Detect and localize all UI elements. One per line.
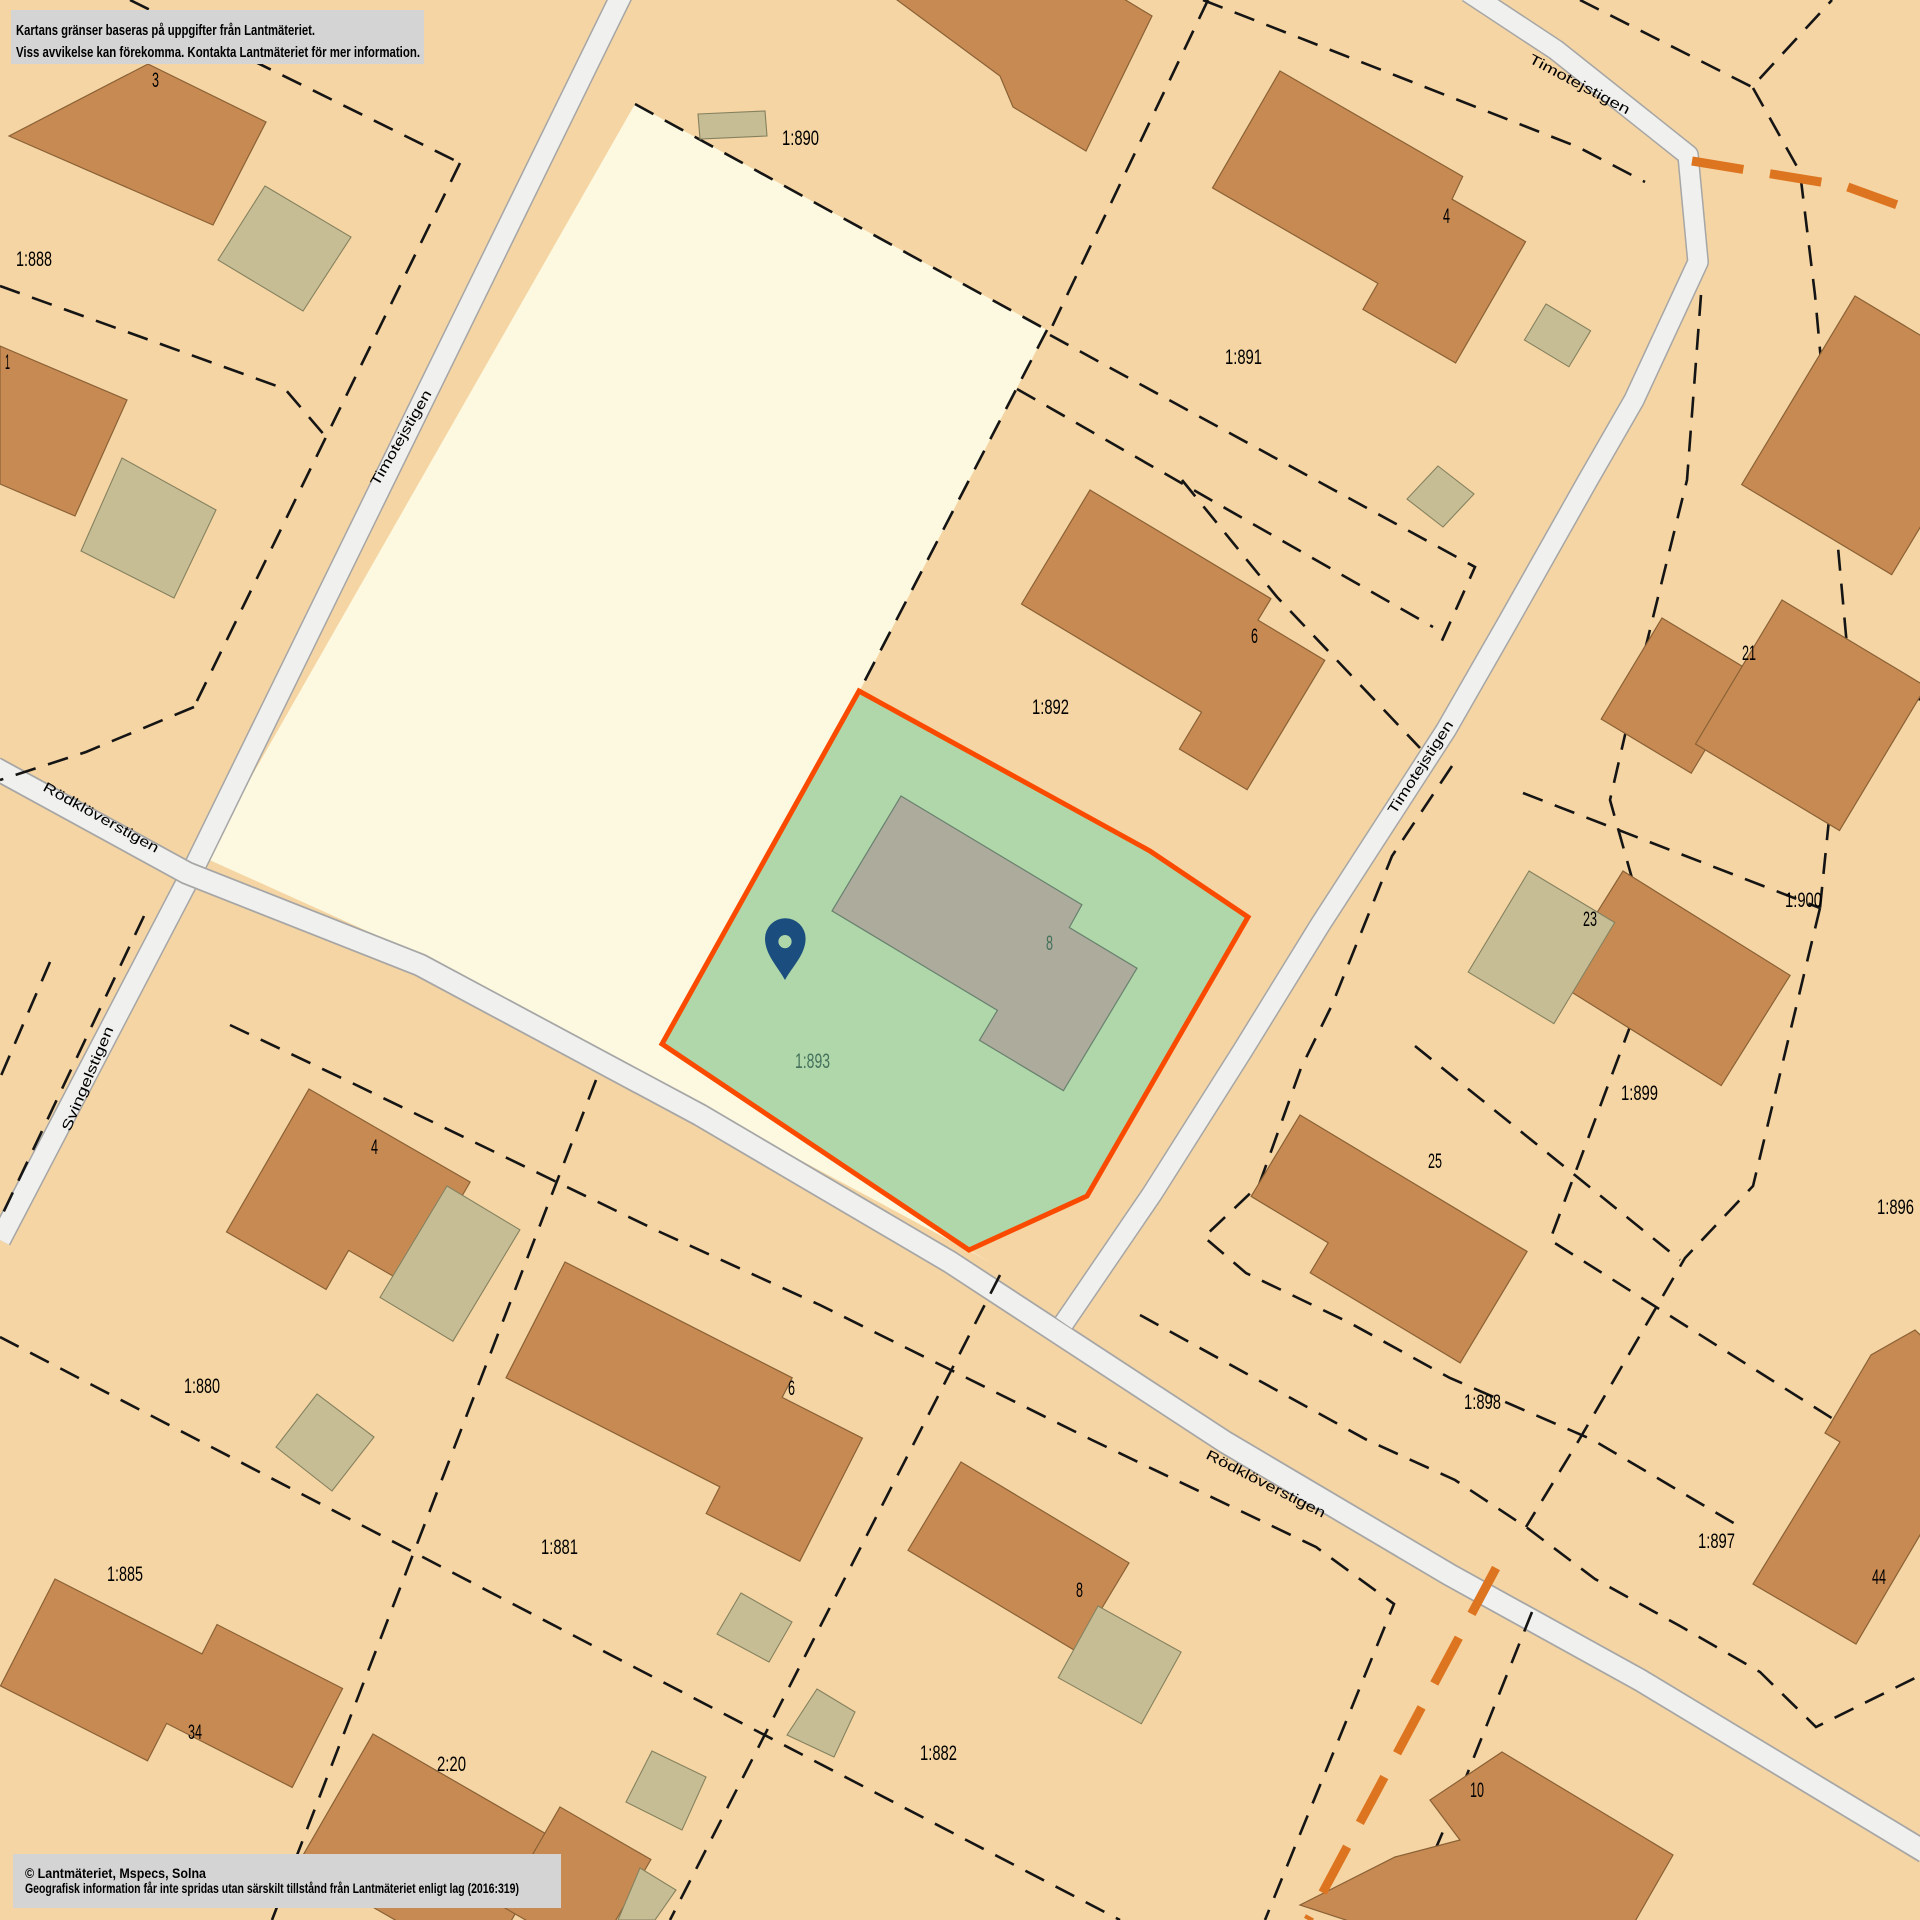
svg-text:34: 34 <box>188 1721 202 1744</box>
svg-text:8: 8 <box>1076 1579 1083 1602</box>
svg-text:1:882: 1:882 <box>920 1742 957 1765</box>
svg-text:4: 4 <box>1443 205 1450 228</box>
svg-text:25: 25 <box>1428 1150 1442 1173</box>
svg-text:1:893: 1:893 <box>795 1050 830 1073</box>
svg-text:Viss avvikelse kan förekomma.: Viss avvikelse kan förekomma. Kontakta L… <box>16 44 420 61</box>
svg-text:6: 6 <box>1251 625 1258 648</box>
svg-text:6: 6 <box>788 1377 795 1400</box>
svg-text:1:891: 1:891 <box>1225 346 1262 369</box>
svg-text:1:892: 1:892 <box>1032 696 1069 719</box>
svg-text:1:899: 1:899 <box>1621 1082 1658 1105</box>
svg-text:1:880: 1:880 <box>184 1375 220 1398</box>
svg-text:1:888: 1:888 <box>16 248 52 271</box>
svg-text:© Lantmäteriet, Mspecs, Solna: © Lantmäteriet, Mspecs, Solna <box>25 1866 206 1881</box>
svg-text:3: 3 <box>152 69 159 92</box>
svg-text:4: 4 <box>371 1136 378 1159</box>
svg-text:Kartans gränser baseras på upp: Kartans gränser baseras på uppgifter frå… <box>16 22 315 39</box>
svg-text:8: 8 <box>1046 932 1053 955</box>
svg-text:1:900: 1:900 <box>1785 889 1822 912</box>
svg-text:1:896: 1:896 <box>1877 1196 1914 1219</box>
svg-text:44: 44 <box>1872 1566 1886 1589</box>
svg-text:1:897: 1:897 <box>1698 1530 1735 1553</box>
svg-text:2:20: 2:20 <box>437 1753 466 1776</box>
svg-text:1:885: 1:885 <box>107 1563 143 1586</box>
svg-text:10: 10 <box>1470 1779 1484 1802</box>
svg-text:1: 1 <box>5 351 10 374</box>
svg-text:1:890: 1:890 <box>782 127 819 150</box>
svg-text:1:898: 1:898 <box>1464 1391 1501 1414</box>
svg-text:Geografisk information får int: Geografisk information får inte spridas … <box>25 1881 519 1896</box>
svg-text:23: 23 <box>1583 908 1597 931</box>
svg-text:21: 21 <box>1742 642 1756 665</box>
svg-text:1:881: 1:881 <box>541 1536 578 1559</box>
